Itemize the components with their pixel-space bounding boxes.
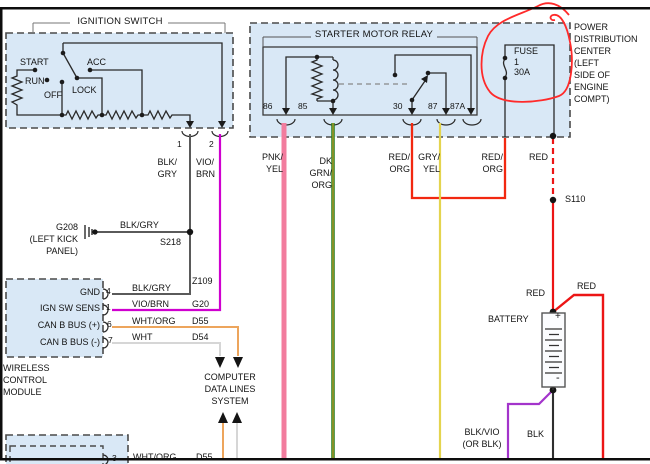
wire-label-gry-yel: GRY/ YEL (402, 151, 440, 175)
dest-d55-label: D55 (192, 315, 209, 327)
relay-pin-87a: 87A (450, 100, 465, 112)
wire-label-red-out: RED (577, 280, 596, 292)
splice-s218-label: S218 (160, 236, 181, 248)
wireless-control-module-label: WIRELESS CONTROL MODULE (3, 362, 50, 398)
ignition-pos-start: START (20, 56, 49, 68)
module-row-can-b-minus: CAN B BUS (-) (18, 336, 100, 348)
wire-label-blk-vio: BLK/VIO (OR BLK) (453, 426, 511, 450)
wire-label-vio-brn: VIO/ BRN (196, 156, 215, 180)
wire-blk-vio (508, 390, 553, 458)
splice-s110-label: S110 (565, 193, 585, 205)
dest-z109-label: Z109 (192, 275, 213, 287)
relay-pin-30: 30 (393, 100, 402, 112)
ground-g208-label: G208 (LEFT KICK PANEL) (8, 221, 78, 257)
module-row-can-b-plus: CAN B BUS (+) (18, 319, 100, 331)
wire-label-pnk-yel: PNK/ YEL (243, 151, 283, 175)
ignition-pin-2: 2 (209, 138, 214, 150)
module-wire-blk-gry: BLK/GRY (132, 282, 171, 294)
wire-wht-upper (112, 343, 220, 356)
module-wire-wht: WHT (132, 331, 153, 343)
relay-pin-85: 85 (298, 100, 307, 112)
module-pin-7: 7 (108, 334, 113, 346)
battery-label: BATTERY (488, 313, 529, 325)
dest-d54-label: D54 (192, 331, 209, 343)
relay-pin-86: 86 (263, 100, 272, 112)
module-row-ign-sw-sens: IGN SW SENS (18, 302, 100, 314)
module-wire-wht-org: WHT/ORG (132, 315, 176, 327)
module-pin-4: 4 (106, 285, 111, 297)
ignition-pos-lock: LOCK (72, 84, 97, 96)
battery-plus-sign: + (555, 311, 561, 323)
wiring-diagram: IGNITION SWITCH START RUN OFF LOCK ACC 1… (0, 0, 650, 464)
module-pin-6: 6 (107, 318, 112, 330)
wire-label-dk-grn-org: DK GRN/ ORG (292, 155, 332, 191)
ground-symbol-g208 (85, 225, 92, 239)
ignition-switch-title: IGNITION SWITCH (40, 16, 200, 28)
module-wire-vio-brn: VIO/BRN (132, 298, 169, 310)
wire-label-blk-gry: BLK/ GRY (135, 156, 177, 180)
wire-label-red-batt: RED (526, 287, 545, 299)
ignition-pos-acc: ACC (87, 56, 106, 68)
battery-minus-sign: - (556, 372, 560, 384)
pdc-label: POWER DISTRIBUTION CENTER (LEFT SIDE OF … (574, 21, 638, 105)
bottom-dest-d55: D55 (196, 451, 213, 463)
ignition-pos-run: RUN (25, 75, 45, 87)
module-pin-1: 1 (106, 301, 111, 313)
bottom-module-pin-3: 3 (112, 452, 117, 464)
ignition-pos-off: OFF (44, 89, 62, 101)
computer-data-lines-label: COMPUTER DATA LINES SYSTEM (192, 371, 268, 407)
module-row-gnd: GND (18, 286, 100, 298)
diagram-canvas (0, 0, 650, 464)
wire-label-red-fuse: RED (529, 151, 548, 163)
bottom-wire-wht-org: WHT/ORG (133, 451, 177, 463)
wire-label-blk: BLK (527, 428, 544, 440)
ignition-pin-1: 1 (177, 138, 182, 150)
battery-symbol (542, 313, 565, 390)
relay-pin-87: 87 (428, 100, 437, 112)
starter-relay-title: STARTER MOTOR RELAY (299, 29, 449, 41)
fuse-label: FUSE 1 30A (514, 46, 538, 78)
dest-g20-label: G20 (192, 298, 209, 310)
wire-label-red-org-fuse: RED/ ORG (463, 151, 503, 175)
ground-wire-label: BLK/GRY (120, 219, 159, 231)
